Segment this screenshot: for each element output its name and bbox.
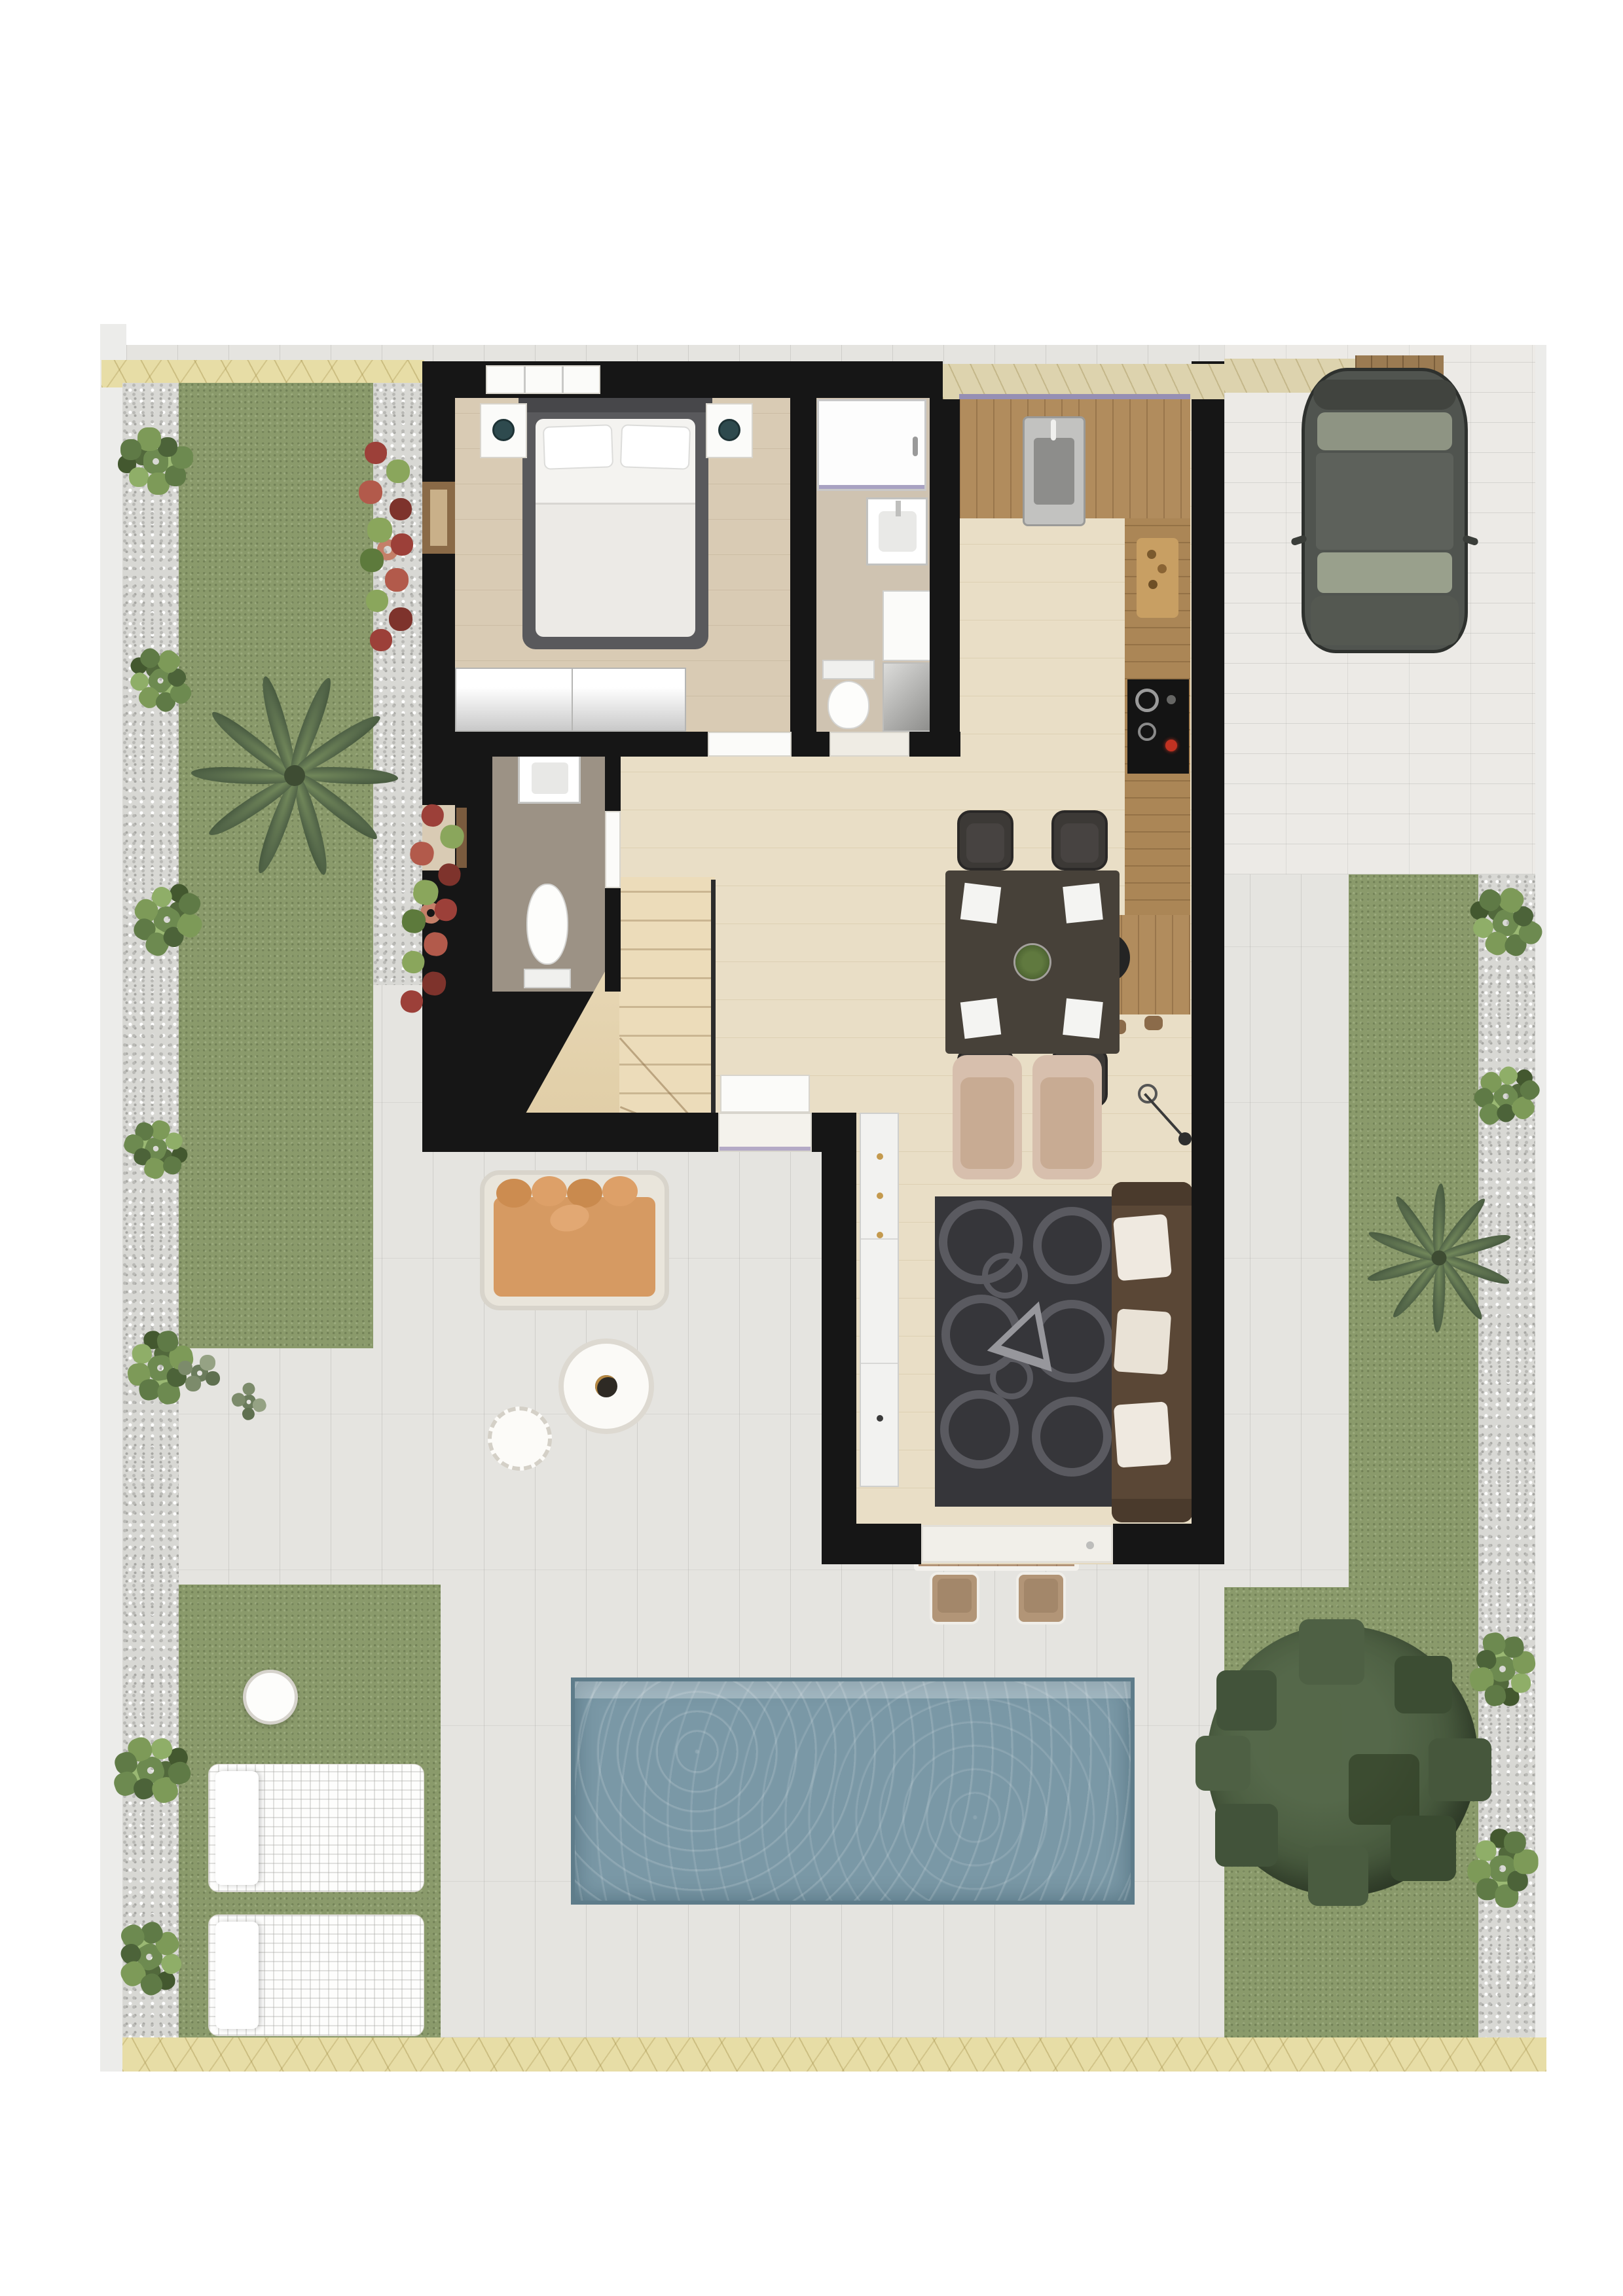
wall-left-b (422, 554, 455, 805)
outdoor-sofa (480, 1170, 669, 1310)
rug-circle-motif (982, 1253, 1028, 1299)
wall-wc-right-a (605, 756, 621, 811)
bathroom-washbasin (866, 497, 928, 565)
sideboard-knobs (877, 1153, 883, 1160)
staircase (619, 877, 715, 1152)
dining-chair (1051, 810, 1108, 870)
car-rear-window (1317, 412, 1452, 450)
dining-chair (957, 810, 1013, 870)
wall-stub (792, 732, 830, 757)
centerpiece-plant (1015, 945, 1049, 979)
wall-terrace-divider (822, 1151, 856, 1564)
sideboard-shelf-line (861, 1238, 898, 1240)
burner-dot (1167, 695, 1176, 704)
car-windshield (1317, 552, 1452, 593)
nightstand-lamp (492, 419, 515, 441)
bed-blanket (536, 503, 695, 637)
lamp-base (1138, 1084, 1158, 1103)
nightstand-lamp (718, 419, 740, 441)
sink-tap (1051, 420, 1056, 440)
outdoor-coffee-table (558, 1338, 654, 1434)
outdoor-sofa-pillow (532, 1176, 567, 1206)
sun-lounger (208, 1914, 424, 2036)
wall-living-bottom-a (822, 1524, 921, 1564)
car-roof (1316, 453, 1453, 550)
stone-edging-bottom (122, 2037, 1546, 2072)
sofa-cushion (1113, 1214, 1172, 1282)
garden-tree (1207, 1625, 1478, 1896)
window-mullion (524, 367, 526, 393)
wall-bottom-a (422, 1113, 718, 1152)
sidewalk-strip-right (1535, 345, 1546, 2037)
wall-left-a (422, 398, 455, 482)
washing-machine (883, 662, 931, 732)
toilet-bowl (526, 884, 568, 965)
laundry-cabinet (883, 590, 931, 661)
sink-basin (1034, 438, 1074, 505)
lawn-strip-left (179, 383, 373, 1348)
pool-shallow-edge (575, 1681, 1131, 1698)
sofa-armrest (1112, 1182, 1193, 1206)
car-hood (1311, 596, 1459, 645)
terrace-door-leaf (720, 1075, 810, 1113)
wall-wc-left (455, 756, 492, 992)
lounger-side-table (243, 1670, 298, 1725)
washbasin-tap (896, 501, 901, 516)
gravel-border-right (1478, 874, 1535, 2037)
placemat (1063, 998, 1103, 1039)
burner-ring (1138, 723, 1156, 741)
armchair-seat (960, 1077, 1014, 1169)
shower-glass (819, 485, 924, 489)
bathroom-door-threshold (830, 732, 909, 757)
bed-pillow (543, 424, 613, 470)
gravel-border-left (122, 383, 179, 2037)
wall-wc-right-b (605, 888, 621, 992)
rug-circle-motif (1032, 1397, 1112, 1477)
wc-toilet (521, 884, 575, 988)
dining-table (945, 870, 1120, 1054)
tv-sideboard (860, 1113, 899, 1487)
wall-bathroom-kitchen (930, 364, 960, 757)
outdoor-chair (930, 1572, 979, 1624)
terrace-door-glass-line (720, 1147, 811, 1151)
outdoor-chair (1016, 1572, 1066, 1624)
placemat (960, 998, 1001, 1039)
lamp-head (1178, 1132, 1192, 1145)
wall-right (1192, 361, 1224, 1564)
outdoor-pouf (488, 1407, 552, 1471)
living-rug (935, 1196, 1125, 1507)
window-left-wall (422, 482, 455, 554)
toilet-tank (822, 660, 875, 679)
rug-circle-motif (1033, 1207, 1110, 1284)
bar-stool (1144, 1016, 1163, 1030)
toilet-bowl (828, 681, 869, 729)
glass-door-handle (1086, 1541, 1094, 1549)
bathroom-toilet (820, 660, 880, 732)
triangle-easel-inner (1001, 1307, 1056, 1359)
placemat (960, 883, 1001, 924)
floor-plan-page (0, 0, 1623, 2296)
coffee-table-decor (595, 1375, 617, 1397)
burner-ring (1135, 689, 1159, 712)
armchair (1032, 1055, 1102, 1179)
outdoor-sofa-pillow (496, 1179, 532, 1208)
window-glazing (430, 490, 447, 546)
bedroom-door-threshold (708, 732, 792, 757)
sofa-cushion (1114, 1308, 1171, 1374)
pool-water-texture (575, 1681, 1131, 1901)
window-above-bed (486, 365, 600, 394)
car-trunk (1313, 380, 1456, 410)
outdoor-sofa-pillow (567, 1179, 602, 1208)
wall-bath-bottom (909, 732, 960, 757)
wardrobe-divider (572, 669, 573, 730)
shower (817, 399, 926, 491)
cutting-board (1137, 538, 1178, 618)
toilet-tank (524, 969, 571, 988)
wall-bedroom-bathroom (790, 398, 816, 732)
lamp-arm (1144, 1093, 1184, 1137)
terrace-door-threshold (718, 1113, 812, 1152)
front-door-opening (422, 805, 455, 870)
site-plan (0, 0, 1623, 2296)
double-bed (522, 387, 708, 649)
wall-left-c (422, 870, 455, 1113)
bed-pillow (620, 424, 691, 470)
gravel-path-house-left (373, 383, 422, 985)
wall-bottom-b (812, 1113, 856, 1152)
kitchen-window-glass-line (959, 394, 1190, 399)
swimming-pool (571, 1677, 1135, 1905)
outdoor-sofa-pillow (602, 1176, 638, 1206)
burner-flame-red (1165, 740, 1177, 751)
armchair-seat (1040, 1077, 1094, 1169)
sofa (1112, 1182, 1193, 1522)
garden-glass-door (921, 1525, 1113, 1563)
kitchen-sink (1023, 416, 1085, 526)
stair-handrail (711, 880, 716, 1152)
wardrobe (455, 668, 686, 732)
wall-hall-top (422, 732, 708, 757)
rug-circle-motif (940, 1390, 1019, 1469)
sun-lounger (208, 1764, 424, 1892)
wc-basin-bowl (532, 762, 568, 794)
placemat (1063, 883, 1103, 924)
armchair (953, 1055, 1022, 1179)
washbasin-bowl (879, 511, 917, 552)
parked-car (1302, 368, 1468, 653)
board-food (1147, 550, 1156, 559)
wc-door (605, 811, 621, 888)
front-door-leaf (456, 808, 467, 868)
cooktop (1127, 679, 1189, 774)
sofa-cushion (1114, 1401, 1171, 1467)
shower-handle (913, 437, 918, 456)
wc-washbasin (518, 750, 581, 804)
sofa-armrest (1112, 1499, 1193, 1522)
